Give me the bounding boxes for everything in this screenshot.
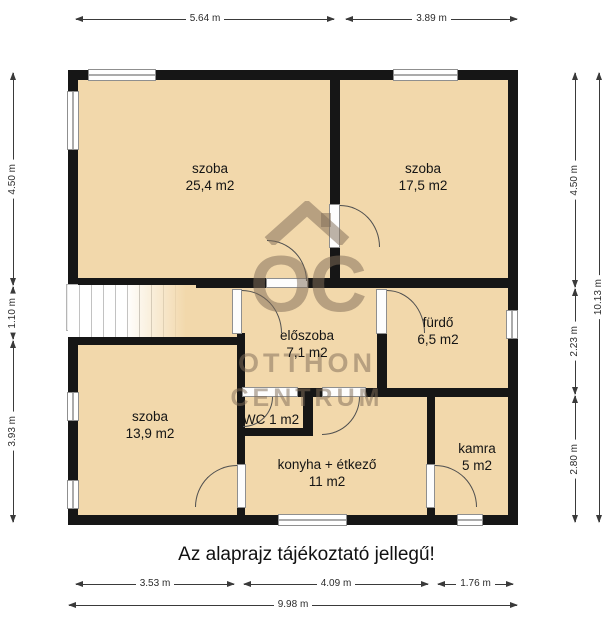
dimension-bottom-total: 9.98 m: [68, 598, 518, 612]
dimension-label: 1.10 m: [7, 294, 19, 333]
door-leaf: [329, 204, 340, 248]
dimension-bottom-3: 1.76 m: [437, 577, 514, 591]
room-area: 11 m2: [247, 473, 407, 490]
door-leaf: [242, 387, 298, 397]
dimension-label: 10.13 m: [593, 275, 605, 319]
dimension-right-2: 2.23 m: [568, 288, 582, 395]
room-name: szoba: [140, 160, 280, 177]
dimension-left-1: 4.50 m: [6, 72, 20, 286]
wall-segment: [427, 507, 435, 515]
door-leaf: [237, 464, 246, 508]
dimension-right-1: 4.50 m: [568, 72, 582, 288]
wall-segment: [78, 337, 237, 345]
stairs: [68, 285, 196, 337]
room-name: szoba: [80, 408, 220, 425]
wall-segment: [365, 388, 508, 397]
dimension-top-2: 3.89 m: [345, 12, 518, 26]
window: [67, 392, 79, 421]
dimension-left-3: 3.93 m: [6, 340, 20, 523]
room-label-wc: WC 1 m2: [211, 411, 331, 428]
wall-segment: [237, 507, 245, 515]
dimension-label: 3.93 m: [7, 412, 19, 451]
room-area: 7,1 m2: [237, 344, 377, 361]
wall-segment: [245, 428, 313, 436]
dimension-bottom-1: 3.53 m: [75, 577, 235, 591]
window: [67, 91, 79, 150]
room-area: 1 m2: [269, 412, 299, 427]
window: [67, 480, 79, 509]
wall-segment: [297, 388, 322, 397]
dimension-label: 2.23 m: [569, 322, 581, 361]
room-label-kamra: kamra 5 m2: [417, 440, 537, 474]
room-label-furdo: fürdő 6,5 m2: [378, 314, 498, 348]
dimension-label: 9.98 m: [274, 599, 313, 611]
room-area: 13,9 m2: [80, 425, 220, 442]
room-area: 25,4 m2: [140, 177, 280, 194]
window: [393, 69, 458, 81]
dimension-top-1: 5.64 m: [75, 12, 335, 26]
dimension-label: 4.09 m: [317, 578, 356, 590]
room-name: fürdő: [378, 314, 498, 331]
room-name: előszoba: [237, 327, 377, 344]
room-label-szoba-3: szoba 13,9 m2: [80, 408, 220, 442]
room-name: szoba: [353, 160, 493, 177]
dimension-left-2: 1.10 m: [6, 286, 20, 340]
room-name: WC: [243, 412, 266, 427]
room-label-konyha: konyha + étkező 11 m2: [247, 456, 407, 490]
room-area: 6,5 m2: [378, 331, 498, 348]
dimension-label: 2.80 m: [569, 440, 581, 479]
dimension-label: 3.89 m: [412, 13, 451, 25]
window: [506, 310, 518, 339]
dimension-bottom-2: 4.09 m: [243, 577, 429, 591]
dimension-label: 4.50 m: [569, 161, 581, 200]
wall-segment: [330, 80, 340, 205]
dimension-right-3: 2.80 m: [568, 395, 582, 523]
room-label-szoba-2: szoba 17,5 m2: [353, 160, 493, 194]
room-label-szoba-1: szoba 25,4 m2: [140, 160, 280, 194]
window: [88, 69, 156, 81]
room-name: konyha + étkező: [247, 456, 407, 473]
disclaimer-text: Az alaprajz tájékoztató jellegű!: [0, 544, 613, 566]
dimension-label: 1.76 m: [456, 578, 495, 590]
dimension-label: 3.53 m: [136, 578, 175, 590]
dimension-right-total: 10.13 m: [592, 72, 606, 523]
room-name: kamra: [417, 440, 537, 457]
dimension-label: 4.50 m: [7, 160, 19, 199]
room-area: 5 m2: [417, 457, 537, 474]
room-label-eloszoba: előszoba 7,1 m2: [237, 327, 377, 361]
room-area: 17,5 m2: [353, 177, 493, 194]
wall-segment: [307, 278, 508, 288]
door-leaf: [322, 387, 366, 397]
dimension-label: 5.64 m: [186, 13, 225, 25]
window: [457, 514, 483, 526]
window: [278, 514, 347, 526]
